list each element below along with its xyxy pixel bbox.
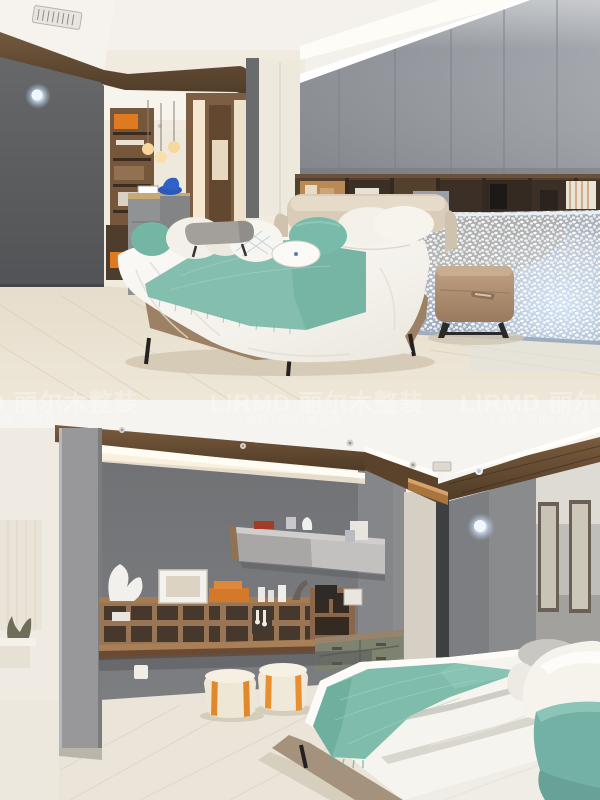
svg-text:| 美观 | 实用 | 智能化: | 美观 | 实用 | 智能化 bbox=[490, 413, 591, 427]
svg-text:LIRMD 丽尔木整装: LIRMD 丽尔木整装 bbox=[210, 389, 424, 417]
svg-text:| 美观 | 实用 | 智能化: | 美观 | 实用 | 智能化 bbox=[0, 413, 56, 427]
svg-text:LIRMD 丽尔木整装: LIRMD 丽尔木整装 bbox=[0, 389, 139, 417]
svg-text:| 美观 | 实用 | 智能化: | 美观 | 实用 | 智能化 bbox=[240, 413, 341, 427]
svg-text:LIRMD 丽尔木整装: LIRMD 丽尔木整装 bbox=[460, 389, 600, 417]
